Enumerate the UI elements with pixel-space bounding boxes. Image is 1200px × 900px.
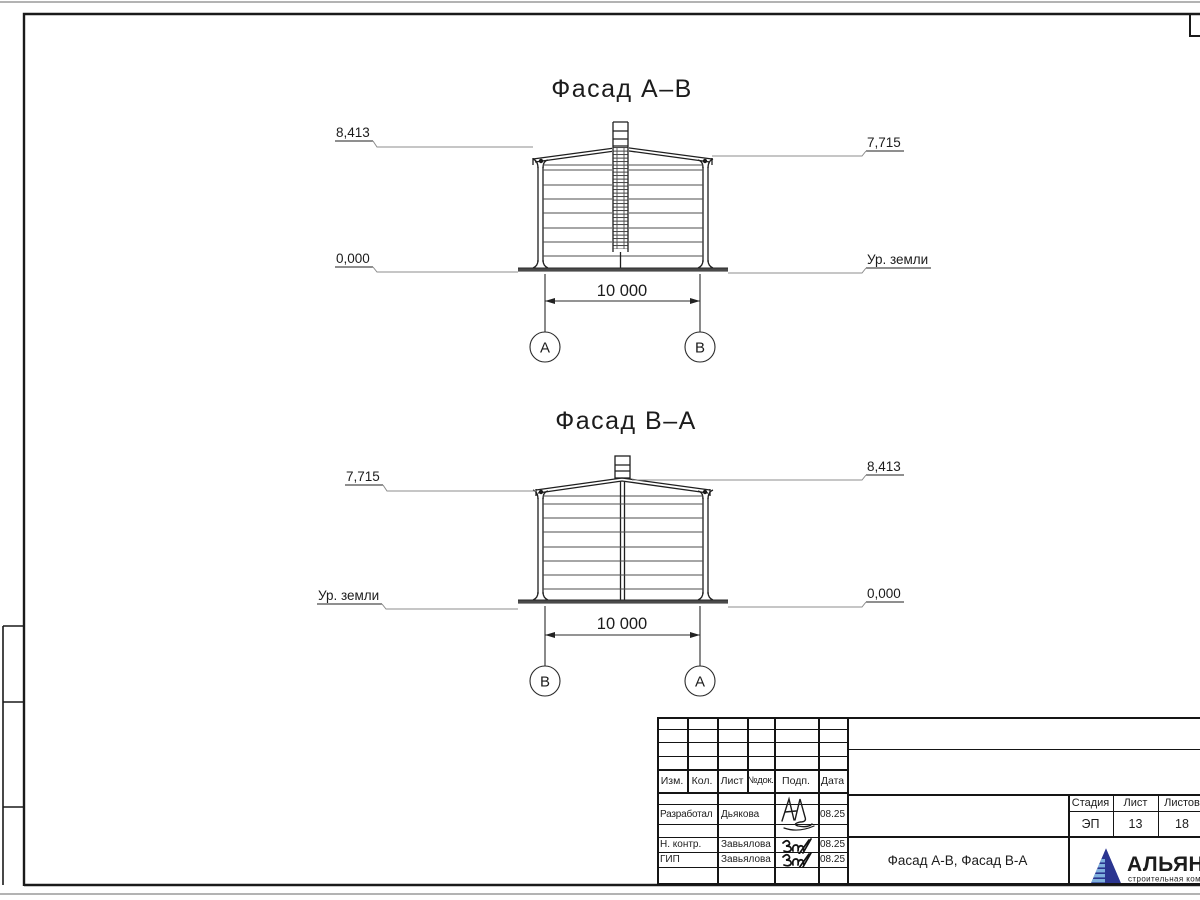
facade-2-roof — [536, 478, 710, 496]
drawing-sheet: Фасад А–В — [0, 0, 1200, 900]
logo-name: АЛЬЯНС — [1127, 853, 1200, 876]
role-developed: Разработал — [658, 804, 719, 824]
axis-letter: А — [695, 674, 705, 691]
dimension-label: 10 000 — [597, 282, 647, 300]
elevation-label: 0,000 — [336, 251, 370, 266]
elevation-label: 7,715 — [867, 135, 901, 150]
date-gip: 08.25 — [818, 852, 847, 867]
left-margin-stamp — [3, 626, 23, 885]
col-header-sign: Подп. — [774, 769, 818, 792]
ground-level-label: Ур. земли — [318, 588, 379, 603]
elevation-label: 8,413 — [867, 459, 901, 474]
sheets-total-value: 18 — [1158, 811, 1200, 836]
ground-level-label: Ур. земли — [867, 252, 928, 267]
name-developed: Дьякова — [719, 804, 776, 824]
title-block: Изм. Кол. Лист №док. Подп. Дата Разработ… — [657, 717, 1200, 885]
document-title: Фасад А-В, Фасад В-А — [847, 836, 1068, 885]
name-gip: Завьялова — [719, 852, 776, 867]
facade-2-elevation-marks: 7,715 Ур. земли 8,413 0,000 — [317, 459, 904, 609]
date-developed: 08.25 — [818, 804, 847, 824]
dimension-label: 10 000 — [597, 615, 647, 633]
facade-1-title: Фасад А–В — [551, 75, 693, 103]
logo-pyramid-icon — [1091, 848, 1121, 883]
role-ncontr: Н. контр. — [658, 837, 719, 852]
facade-1-ladder — [612, 122, 629, 268]
facade-2-chimney — [615, 456, 630, 478]
col-header-list: Лист — [717, 769, 747, 792]
gutter-hook-icon — [703, 490, 707, 494]
gutter-hook-icon — [539, 159, 543, 163]
facade-2-base — [518, 600, 728, 604]
facade-2-drawing: Фасад В–А 7,715 — [317, 407, 904, 696]
col-header-date: Дата — [818, 769, 847, 792]
elevation-label: 8,413 — [336, 125, 370, 140]
col-header-izm: Изм. — [657, 769, 687, 792]
sheets-total-header: Листов — [1158, 794, 1200, 811]
sheet-header: Лист — [1113, 794, 1158, 811]
name-ncontr: Завьялова — [719, 837, 776, 852]
facade-2-title: Фасад В–А — [555, 407, 697, 435]
facade-2-walls — [533, 481, 713, 600]
stage-value: ЭП — [1068, 811, 1113, 836]
logo-subtitle: строительная компания — [1128, 875, 1200, 884]
facade-1-base — [518, 268, 728, 272]
facade-2-dimension: 10 000 В А — [530, 606, 715, 696]
col-header-doc: №док. — [747, 769, 774, 792]
role-gip: ГИП — [658, 852, 719, 867]
date-ncontr: 08.25 — [818, 837, 847, 852]
gutter-hook-icon — [703, 159, 707, 163]
axis-letter: В — [695, 340, 705, 357]
facade-1-drawing: Фасад А–В — [335, 75, 931, 362]
corner-box — [1190, 14, 1200, 36]
elevation-label: 0,000 — [867, 586, 901, 601]
sheet-value: 13 — [1113, 811, 1158, 836]
elevation-label: 7,715 — [346, 469, 380, 484]
signature-gip — [781, 852, 821, 873]
signature-developed — [778, 795, 822, 838]
gutter-hook-icon — [539, 490, 543, 494]
col-header-kol: Кол. — [687, 769, 717, 792]
axis-letter: А — [540, 340, 550, 357]
axis-letter: В — [540, 674, 550, 691]
company-logo: АЛЬЯНС строительная компания — [1089, 844, 1200, 891]
stage-header: Стадия — [1068, 794, 1113, 811]
facade-1-dimension: 10 000 А В — [530, 274, 715, 362]
